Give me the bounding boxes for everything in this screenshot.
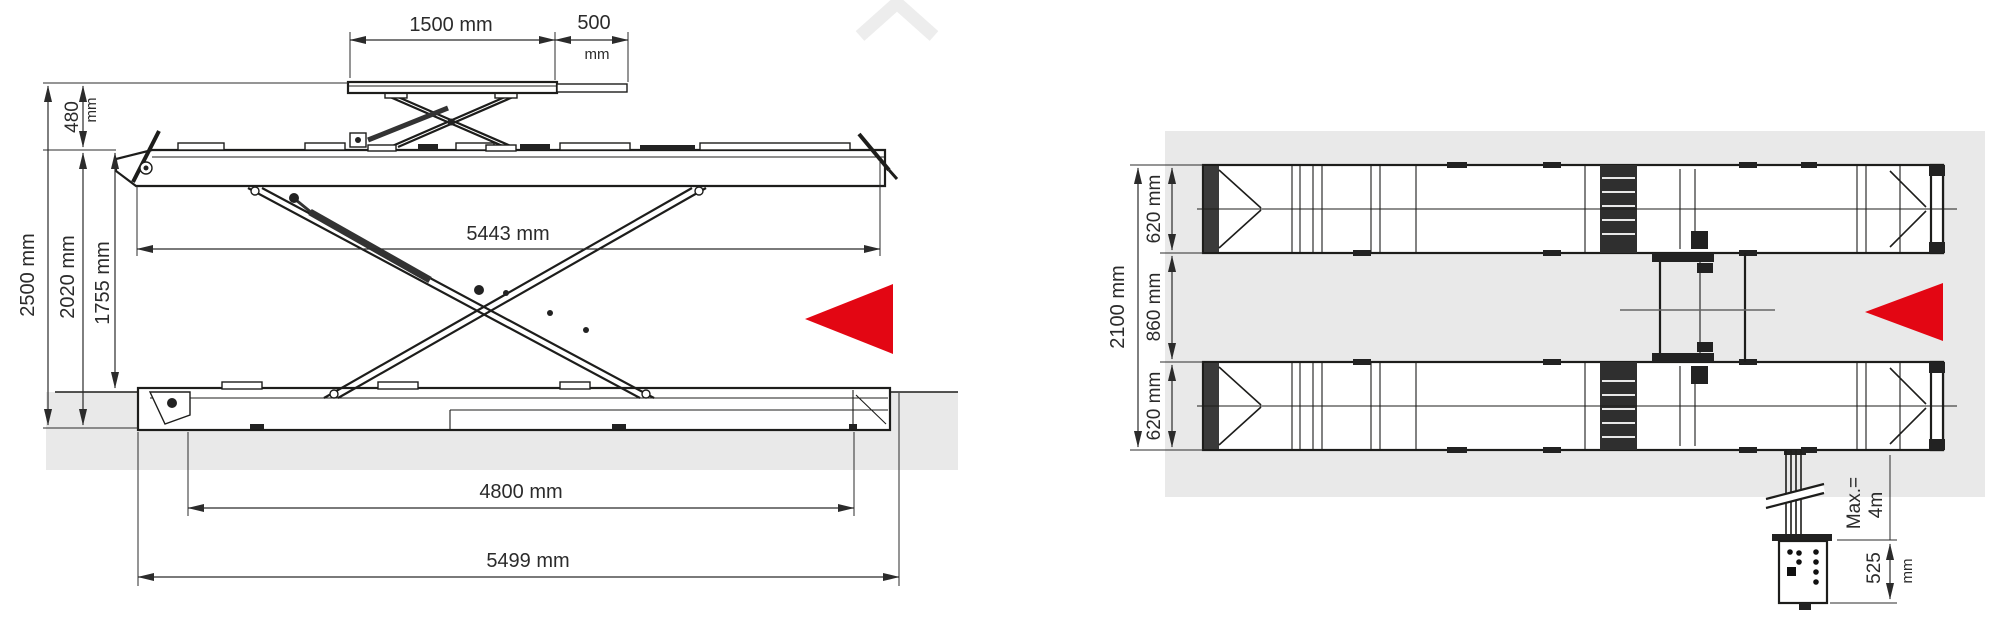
dim-label-unit: mm — [83, 98, 100, 123]
dim-label-value: 525 — [1864, 552, 1885, 584]
dim-label: 2500 mm — [17, 233, 39, 316]
dim-underbody-clearance: 1755 mm — [92, 153, 115, 388]
dim-console-offset: 525 mm — [1864, 544, 1916, 599]
dim-overall-height: 2500 mm — [17, 86, 48, 425]
dim-label-line1: Max.= — [1844, 477, 1865, 529]
dim-label: 2100 mm — [1107, 265, 1129, 348]
dim-jack-height: 480 mm — [62, 86, 100, 147]
base-frame — [138, 382, 890, 430]
reference-ticks — [43, 83, 348, 428]
dim-overall-width: 2100 mm — [1107, 168, 1138, 447]
dim-label-value: 500 — [577, 12, 610, 34]
dim-label: 1755 mm — [92, 241, 114, 324]
dim-runway-height: 2020 mm — [57, 153, 83, 425]
upper-runway — [116, 131, 897, 186]
dim-label: 860 mm — [1144, 273, 1165, 342]
dim-jack-extension: 500 mm — [555, 12, 628, 63]
dim-label: 620 mm — [1144, 175, 1165, 244]
dim-label-unit: mm — [585, 46, 610, 63]
dim-label: 1500 mm — [409, 14, 492, 36]
control-box — [1772, 534, 1832, 610]
jack-scissor — [350, 93, 517, 151]
technical-drawing-canvas: 1500 mm 500 mm 2500 mm 480 mm 2020 mm 17… — [0, 0, 2000, 625]
plan-view: 2100 mm 620 mm 860 mm 620 mm — [1107, 131, 1985, 610]
side-view: 1500 mm 500 mm 2500 mm 480 mm 2020 mm 17… — [17, 12, 958, 586]
dim-label: 5443 mm — [466, 223, 549, 245]
drive-direction-arrow-icon — [805, 284, 893, 354]
dim-label-line2: 4m — [1866, 492, 1887, 518]
dim-label: 4800 mm — [479, 481, 562, 503]
jack-lift — [348, 82, 627, 151]
dim-label: 2020 mm — [57, 235, 79, 318]
dim-label: 5499 mm — [486, 550, 569, 572]
dim-label: 620 mm — [1144, 372, 1165, 441]
watermark-chevron-icon — [860, 3, 934, 36]
jack-extension-plate — [557, 84, 627, 92]
jack-platform — [348, 82, 627, 93]
dim-label-value: 480 — [62, 101, 83, 133]
scissor-lift-dimension-drawing: 1500 mm 500 mm 2500 mm 480 mm 2020 mm 17… — [0, 0, 2000, 625]
main-scissor — [248, 187, 706, 398]
dim-label-unit: mm — [1899, 559, 1916, 584]
